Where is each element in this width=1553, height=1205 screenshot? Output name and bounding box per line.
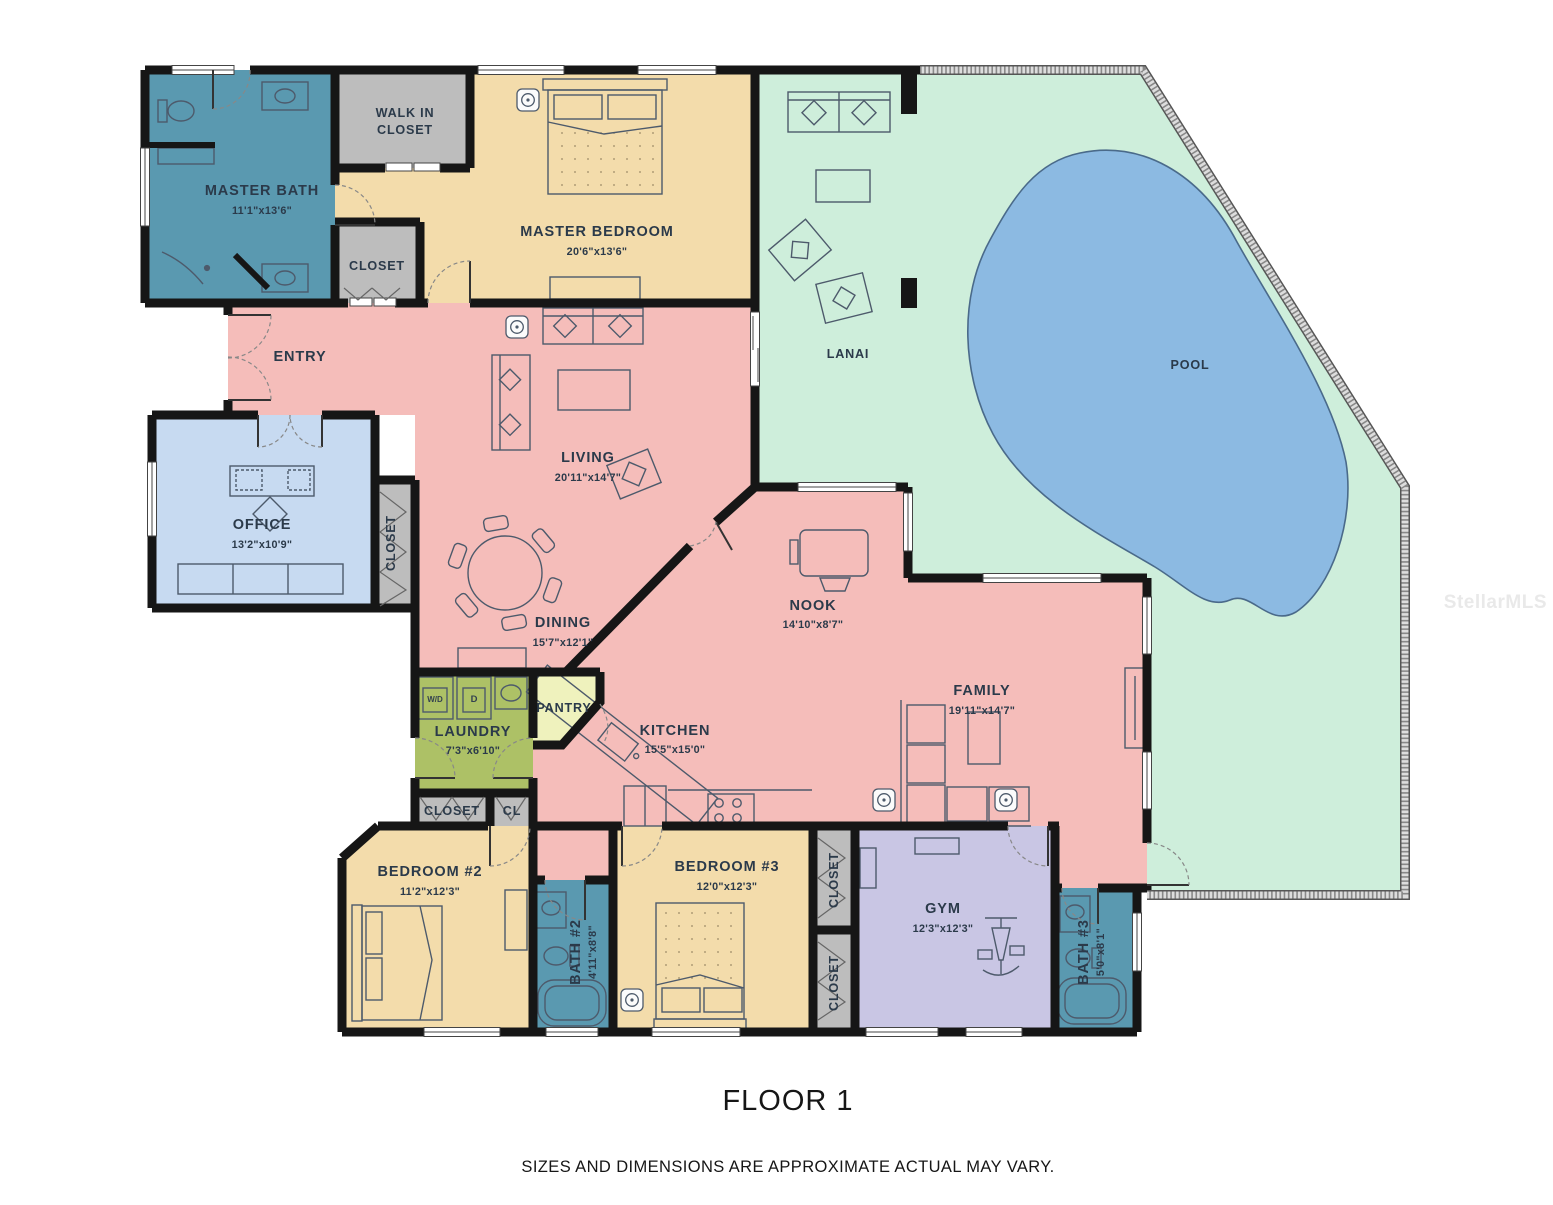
hall-cl-label: CL [503,804,521,818]
window [1143,752,1152,809]
gym-label: GYM [925,901,961,917]
office-label: OFFICE [233,517,292,533]
window [652,1028,740,1037]
pantry-label: PANTRY [536,701,591,715]
window [904,493,913,551]
window [1133,913,1142,971]
entry-closet-label: CLOSET [349,259,405,273]
walk-in-closet-label: WALK IN [376,106,435,120]
window [424,1028,500,1037]
living-dims: 20'11"x14'7" [555,472,621,484]
floor-plan: MASTER BATH 11'1"x13'6" WALK IN CLOSET C… [0,0,1553,1200]
nook-label: NOOK [789,598,836,614]
bedroom2-dims: 11'2"x12'3" [400,886,460,898]
lanai-label: LANAI [827,347,869,361]
window [148,462,157,536]
lanai-column [901,66,917,114]
lanai-column [901,278,917,308]
window [638,66,716,75]
page-title: FLOOR 1 [722,1085,853,1117]
master-bedroom-label: MASTER BEDROOM [520,224,674,240]
disclaimer: SIZES AND DIMENSIONS ARE APPROXIMATE ACT… [521,1158,1054,1176]
gym-dims: 12'3"x12'3" [913,923,974,935]
dryer-label: D [471,694,478,705]
window [1143,597,1152,654]
window [172,66,234,75]
pool-label: POOL [1171,358,1210,372]
bedroom3-dims: 12'0"x12'3" [697,881,758,893]
living-label: LIVING [561,450,615,466]
watermark: StellarMLS [1444,592,1547,613]
entry-label: ENTRY [273,349,326,365]
bath2-dims: 4'11"x8'8" [587,925,599,979]
laundry-dims: 7'3"x6'10" [446,745,500,757]
family-dims: 19'11"x14'7" [949,705,1015,717]
window [866,1028,938,1037]
kitchen-dims: 15'5"x15'0" [645,744,706,756]
office-dims: 13'2"x10'9" [232,539,293,551]
bedroom2-label: BEDROOM #2 [378,864,483,880]
office-closet-label: CLOSET [384,515,398,571]
sliding-door [751,312,760,386]
window [546,1028,598,1037]
window [983,574,1101,583]
master-bedroom-dims: 20'6"x13'6" [567,246,628,258]
master-bath-label: MASTER BATH [205,183,319,199]
window [478,66,564,75]
master-bath-dims: 11'1"x13'6" [232,205,292,217]
bifold-door [350,298,372,306]
window [966,1028,1022,1037]
closet3-upper-label: CLOSET [827,852,841,908]
kitchen-label: KITCHEN [640,723,711,739]
laundry-label: LAUNDRY [435,724,512,740]
window [798,483,896,492]
washer-label: W/D [427,695,443,704]
bifold-door [414,163,440,171]
room-office [152,415,375,608]
closet3-lower-label: CLOSET [827,955,841,1011]
bifold-door [386,163,412,171]
dining-dims: 15'7"x12'1" [533,637,594,649]
walk-in-closet-label2: CLOSET [377,123,433,137]
dining-label: DINING [535,615,591,631]
hall-closet-label: CLOSET [424,804,480,818]
family-label: FAMILY [953,683,1010,699]
bath3-label: BATH #3 [1076,919,1092,985]
nook-dims: 14'10"x8'7" [783,619,844,631]
bath2-label: BATH #2 [568,919,584,985]
window [141,148,150,226]
bedroom3-label: BEDROOM #3 [675,859,780,875]
bath3-dims: 5'0"x8'1" [1095,928,1107,976]
floor-plan-svg: MASTER BATH 11'1"x13'6" WALK IN CLOSET C… [0,0,1553,1200]
